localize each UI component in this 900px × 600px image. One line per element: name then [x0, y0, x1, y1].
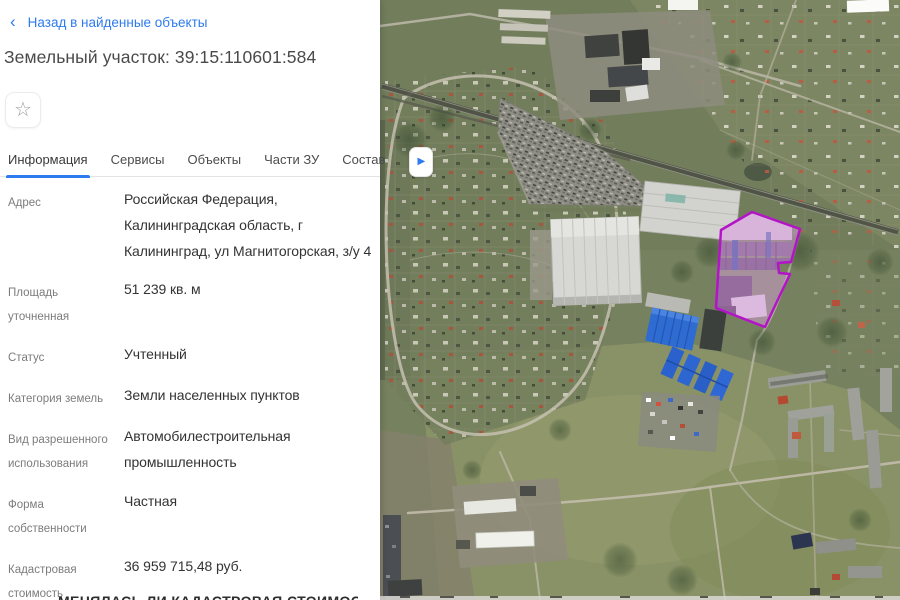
field-value: Российская Федерация, Калининградская об… [124, 186, 372, 264]
field-value: Земли населенных пунктов [124, 382, 372, 411]
object-info-panel: ‹ Назад в найденные объекты Земельный уч… [0, 0, 380, 600]
tab-сервисы[interactable]: Сервисы [111, 143, 165, 177]
field-value: Учтенный [124, 341, 372, 370]
chevron-right-icon: ▶ [417, 156, 425, 167]
field-row: СтатусУчтенный [8, 341, 372, 370]
tab-информация[interactable]: Информация [8, 143, 88, 177]
clipped-bottom-link[interactable]: МЕНЯЛАСЬ ЛИ КАДАСТРОВАЯ СТОИМОСТЬ [58, 593, 358, 600]
satellite-map-canvas[interactable] [380, 0, 900, 600]
field-label: Адрес [8, 186, 118, 264]
field-row: Форма собственностиЧастная [8, 488, 372, 541]
tab-состав[interactable]: Состав [342, 143, 385, 177]
tab-объекты[interactable]: Объекты [187, 143, 241, 177]
star-outline-icon: ☆ [14, 100, 32, 120]
field-row: Категория земельЗемли населенных пунктов [8, 382, 372, 411]
field-label: Статус [8, 341, 118, 370]
field-label: Площадь уточненная [8, 276, 118, 329]
field-value: Частная [124, 488, 372, 541]
back-link[interactable]: ‹ Назад в найденные объекты [10, 15, 207, 30]
field-value: Автомобилестроительная промышленность [124, 423, 372, 476]
garage-cluster [638, 392, 720, 452]
favorite-button[interactable]: ☆ [5, 92, 41, 128]
tabs-scroll-right-button[interactable]: ▶ [409, 147, 433, 177]
facility-southwest [452, 478, 568, 568]
field-row: Площадь уточненная51 239 кв. м [8, 276, 372, 329]
back-link-label: Назад в найденные объекты [28, 15, 208, 30]
map-viewport[interactable] [380, 0, 900, 600]
field-row: АдресРоссийская Федерация, Калининградск… [8, 186, 372, 264]
field-label: Форма собственности [8, 488, 118, 541]
field-row: Вид разрешенного использованияАвтомобиле… [8, 423, 372, 476]
tab-части-зу[interactable]: Части ЗУ [264, 143, 319, 177]
page-title: Земельный участок: 39:15:110601:584 [4, 47, 316, 68]
cadastral-app: ‹ Назад в найденные объекты Земельный уч… [0, 0, 900, 600]
field-label: Вид разрешенного использования [8, 423, 118, 476]
tab-bar: ИнформацияСервисыОбъектыЧасти ЗУСостав ▶ [0, 143, 380, 177]
field-value: 51 239 кв. м [124, 276, 372, 329]
chevron-left-icon: ‹ [10, 15, 16, 28]
field-label: Категория земель [8, 382, 118, 411]
imagery-tile-seam [380, 596, 900, 600]
info-rows: АдресРоссийская Федерация, Калининградск… [8, 186, 372, 600]
